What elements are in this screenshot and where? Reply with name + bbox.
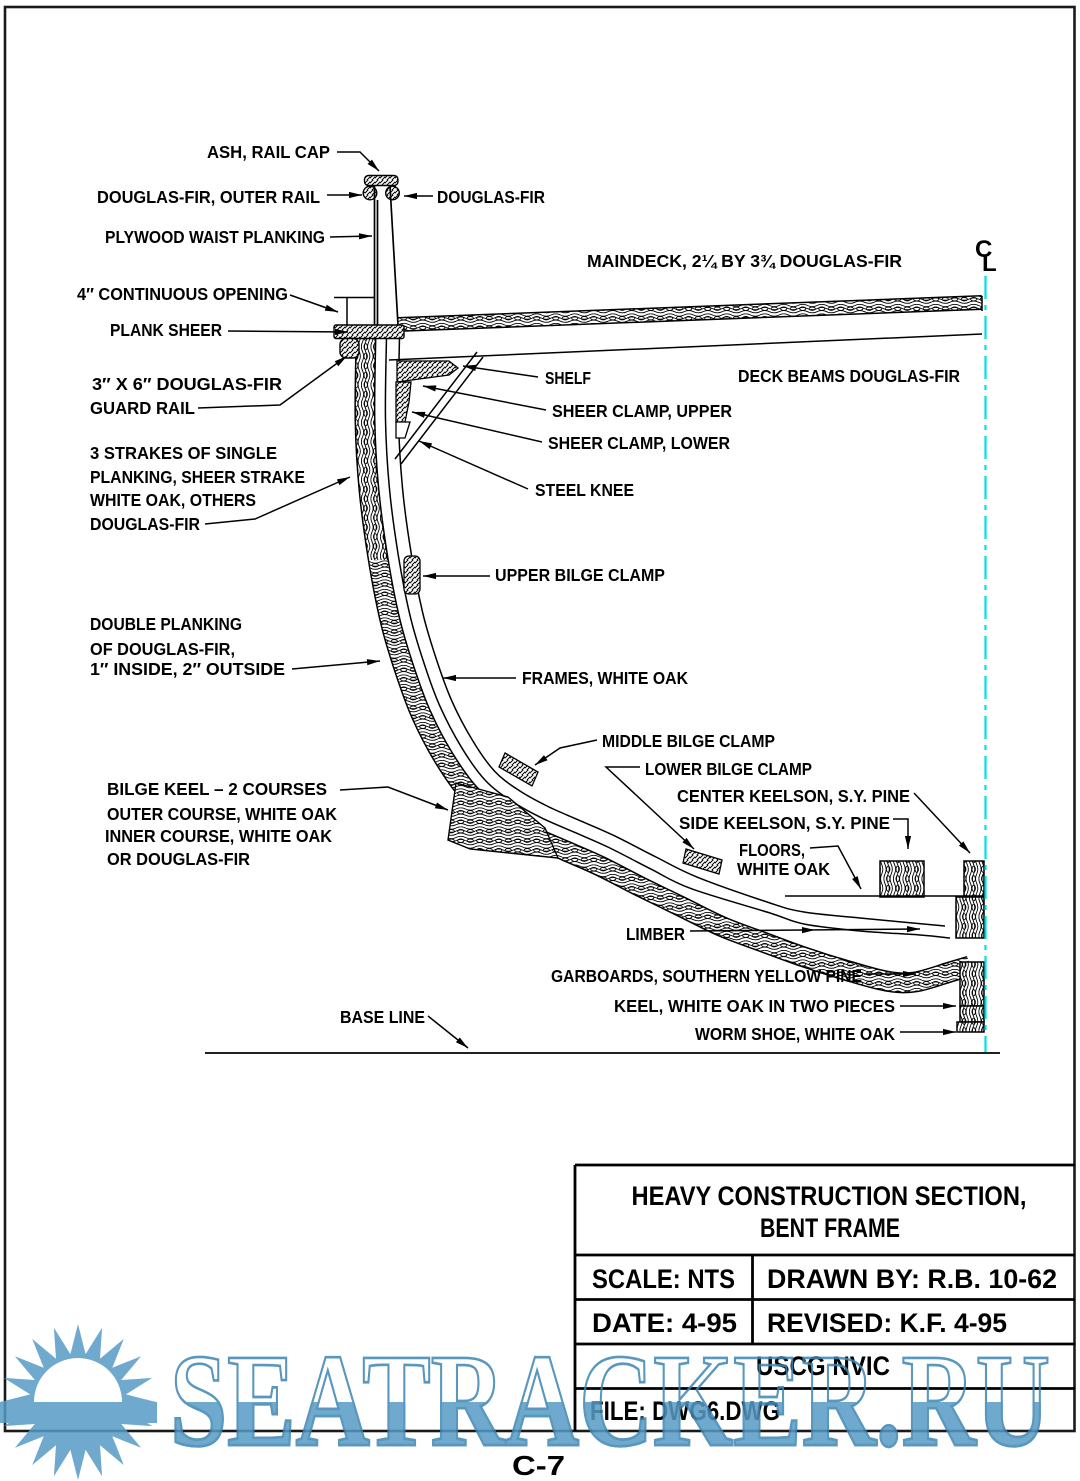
svg-text:SCALE: NTS: SCALE: NTS	[592, 1264, 735, 1294]
svg-text:OR DOUGLAS-FIR: OR DOUGLAS-FIR	[107, 849, 250, 869]
svg-text:LOWER BILGE CLAMP: LOWER BILGE CLAMP	[645, 759, 812, 779]
svg-text:MAINDECK, 2¼ BY 3¾ DOUGLAS-FIR: MAINDECK, 2¼ BY 3¾ DOUGLAS-FIR	[587, 251, 902, 271]
svg-text:OUTER COURSE, WHITE OAK: OUTER COURSE, WHITE OAK	[107, 804, 337, 824]
svg-text:WHITE OAK: WHITE OAK	[737, 859, 830, 879]
svg-text:KEEL, WHITE OAK IN TWO PIECES: KEEL, WHITE OAK IN TWO PIECES	[614, 996, 895, 1016]
svg-text:DOUGLAS-FIR, OUTER RAIL: DOUGLAS-FIR, OUTER RAIL	[97, 187, 320, 207]
svg-text:BASE LINE: BASE LINE	[340, 1007, 425, 1027]
svg-text:HEAVY CONSTRUCTION SECTION,: HEAVY CONSTRUCTION SECTION,	[632, 1181, 1027, 1211]
svg-text:SHELF: SHELF	[545, 368, 591, 388]
svg-text:PLANK SHEER: PLANK SHEER	[110, 320, 222, 340]
svg-text:LIMBER: LIMBER	[626, 924, 685, 944]
svg-text:UPPER BILGE CLAMP: UPPER BILGE CLAMP	[495, 565, 665, 585]
svg-text:3″ X 6″ DOUGLAS-FIR: 3″ X 6″ DOUGLAS-FIR	[92, 374, 282, 394]
svg-text:L: L	[982, 250, 997, 277]
svg-text:INNER COURSE, WHITE OAK: INNER COURSE, WHITE OAK	[105, 826, 332, 846]
svg-text:DOUGLAS-FIR: DOUGLAS-FIR	[437, 187, 545, 207]
svg-text:GUARD RAIL: GUARD RAIL	[90, 398, 195, 418]
svg-text:ASH, RAIL CAP: ASH, RAIL CAP	[207, 142, 330, 162]
svg-text:DECK BEAMS DOUGLAS-FIR: DECK BEAMS DOUGLAS-FIR	[738, 366, 960, 386]
svg-text:FRAMES, WHITE OAK: FRAMES, WHITE OAK	[522, 668, 688, 688]
svg-text:PLYWOOD WAIST PLANKING: PLYWOOD WAIST PLANKING	[105, 227, 325, 247]
svg-text:GARBOARDS, SOUTHERN YELLOW PIN: GARBOARDS, SOUTHERN YELLOW PINE	[551, 966, 862, 986]
svg-text:BILGE KEEL – 2 COURSES: BILGE KEEL – 2 COURSES	[107, 779, 327, 799]
svg-text:DOUBLE PLANKING: DOUBLE PLANKING	[90, 614, 242, 634]
svg-text:SIDE KEELSON, S.Y. PINE: SIDE KEELSON, S.Y. PINE	[679, 813, 890, 833]
svg-text:PLANKING, SHEER STRAKE: PLANKING, SHEER STRAKE	[90, 467, 305, 487]
svg-text:WHITE OAK, OTHERS: WHITE OAK, OTHERS	[90, 490, 256, 510]
svg-text:SHEER CLAMP, UPPER: SHEER CLAMP, UPPER	[552, 401, 732, 421]
svg-text:OF DOUGLAS-FIR,: OF DOUGLAS-FIR,	[90, 639, 235, 659]
svg-text:DRAWN BY: R.B. 10-62: DRAWN BY: R.B. 10-62	[767, 1264, 1057, 1294]
svg-text:BENT FRAME: BENT FRAME	[760, 1213, 900, 1243]
svg-text:4″ CONTINUOUS OPENING: 4″ CONTINUOUS OPENING	[77, 284, 288, 304]
svg-text:DOUGLAS-FIR: DOUGLAS-FIR	[90, 514, 200, 534]
svg-text:WORM SHOE, WHITE OAK: WORM SHOE, WHITE OAK	[695, 1024, 895, 1044]
svg-text:SHEER CLAMP, LOWER: SHEER CLAMP, LOWER	[548, 433, 730, 453]
svg-text:3 STRAKES OF SINGLE: 3 STRAKES OF SINGLE	[90, 443, 277, 463]
svg-text:MIDDLE BILGE CLAMP: MIDDLE BILGE CLAMP	[602, 731, 775, 751]
svg-text:FLOORS,: FLOORS,	[739, 840, 805, 860]
svg-text:CENTER KEELSON, S.Y. PINE: CENTER KEELSON, S.Y. PINE	[677, 786, 910, 806]
svg-text:1″ INSIDE, 2″ OUTSIDE: 1″ INSIDE, 2″ OUTSIDE	[90, 659, 285, 679]
svg-text:STEEL KNEE: STEEL KNEE	[535, 480, 634, 500]
